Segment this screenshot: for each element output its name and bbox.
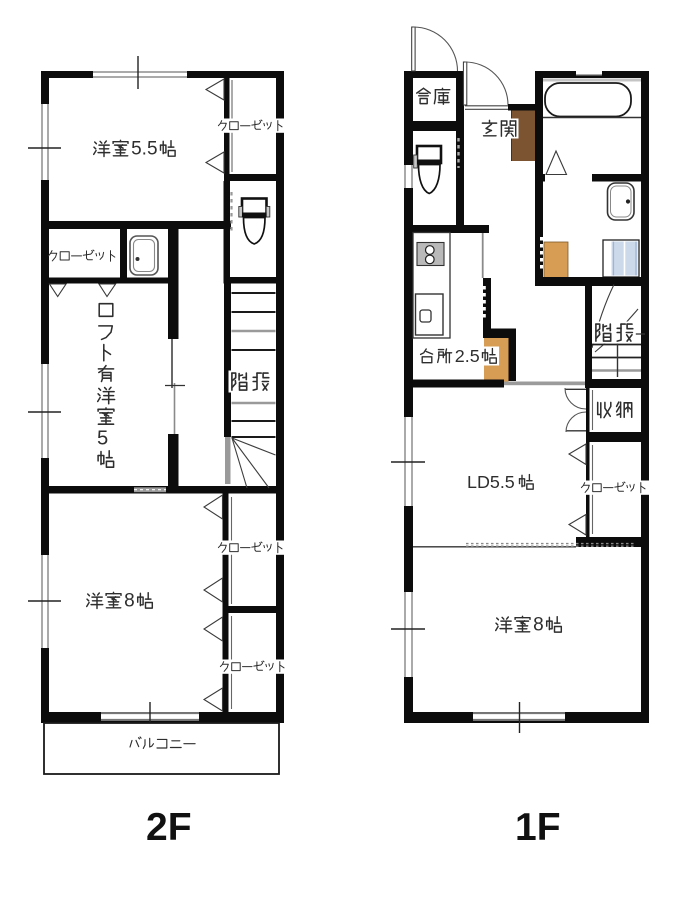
svg-text:5.5: 5.5 xyxy=(131,139,157,160)
svg-text:2F: 2F xyxy=(146,806,192,849)
svg-text:2.5: 2.5 xyxy=(455,346,480,366)
svg-text:8: 8 xyxy=(533,615,544,636)
svg-text:8: 8 xyxy=(124,591,135,612)
svg-text:5: 5 xyxy=(97,427,108,449)
svg-text:LD5.5: LD5.5 xyxy=(467,472,515,492)
svg-text:1F: 1F xyxy=(515,806,561,849)
